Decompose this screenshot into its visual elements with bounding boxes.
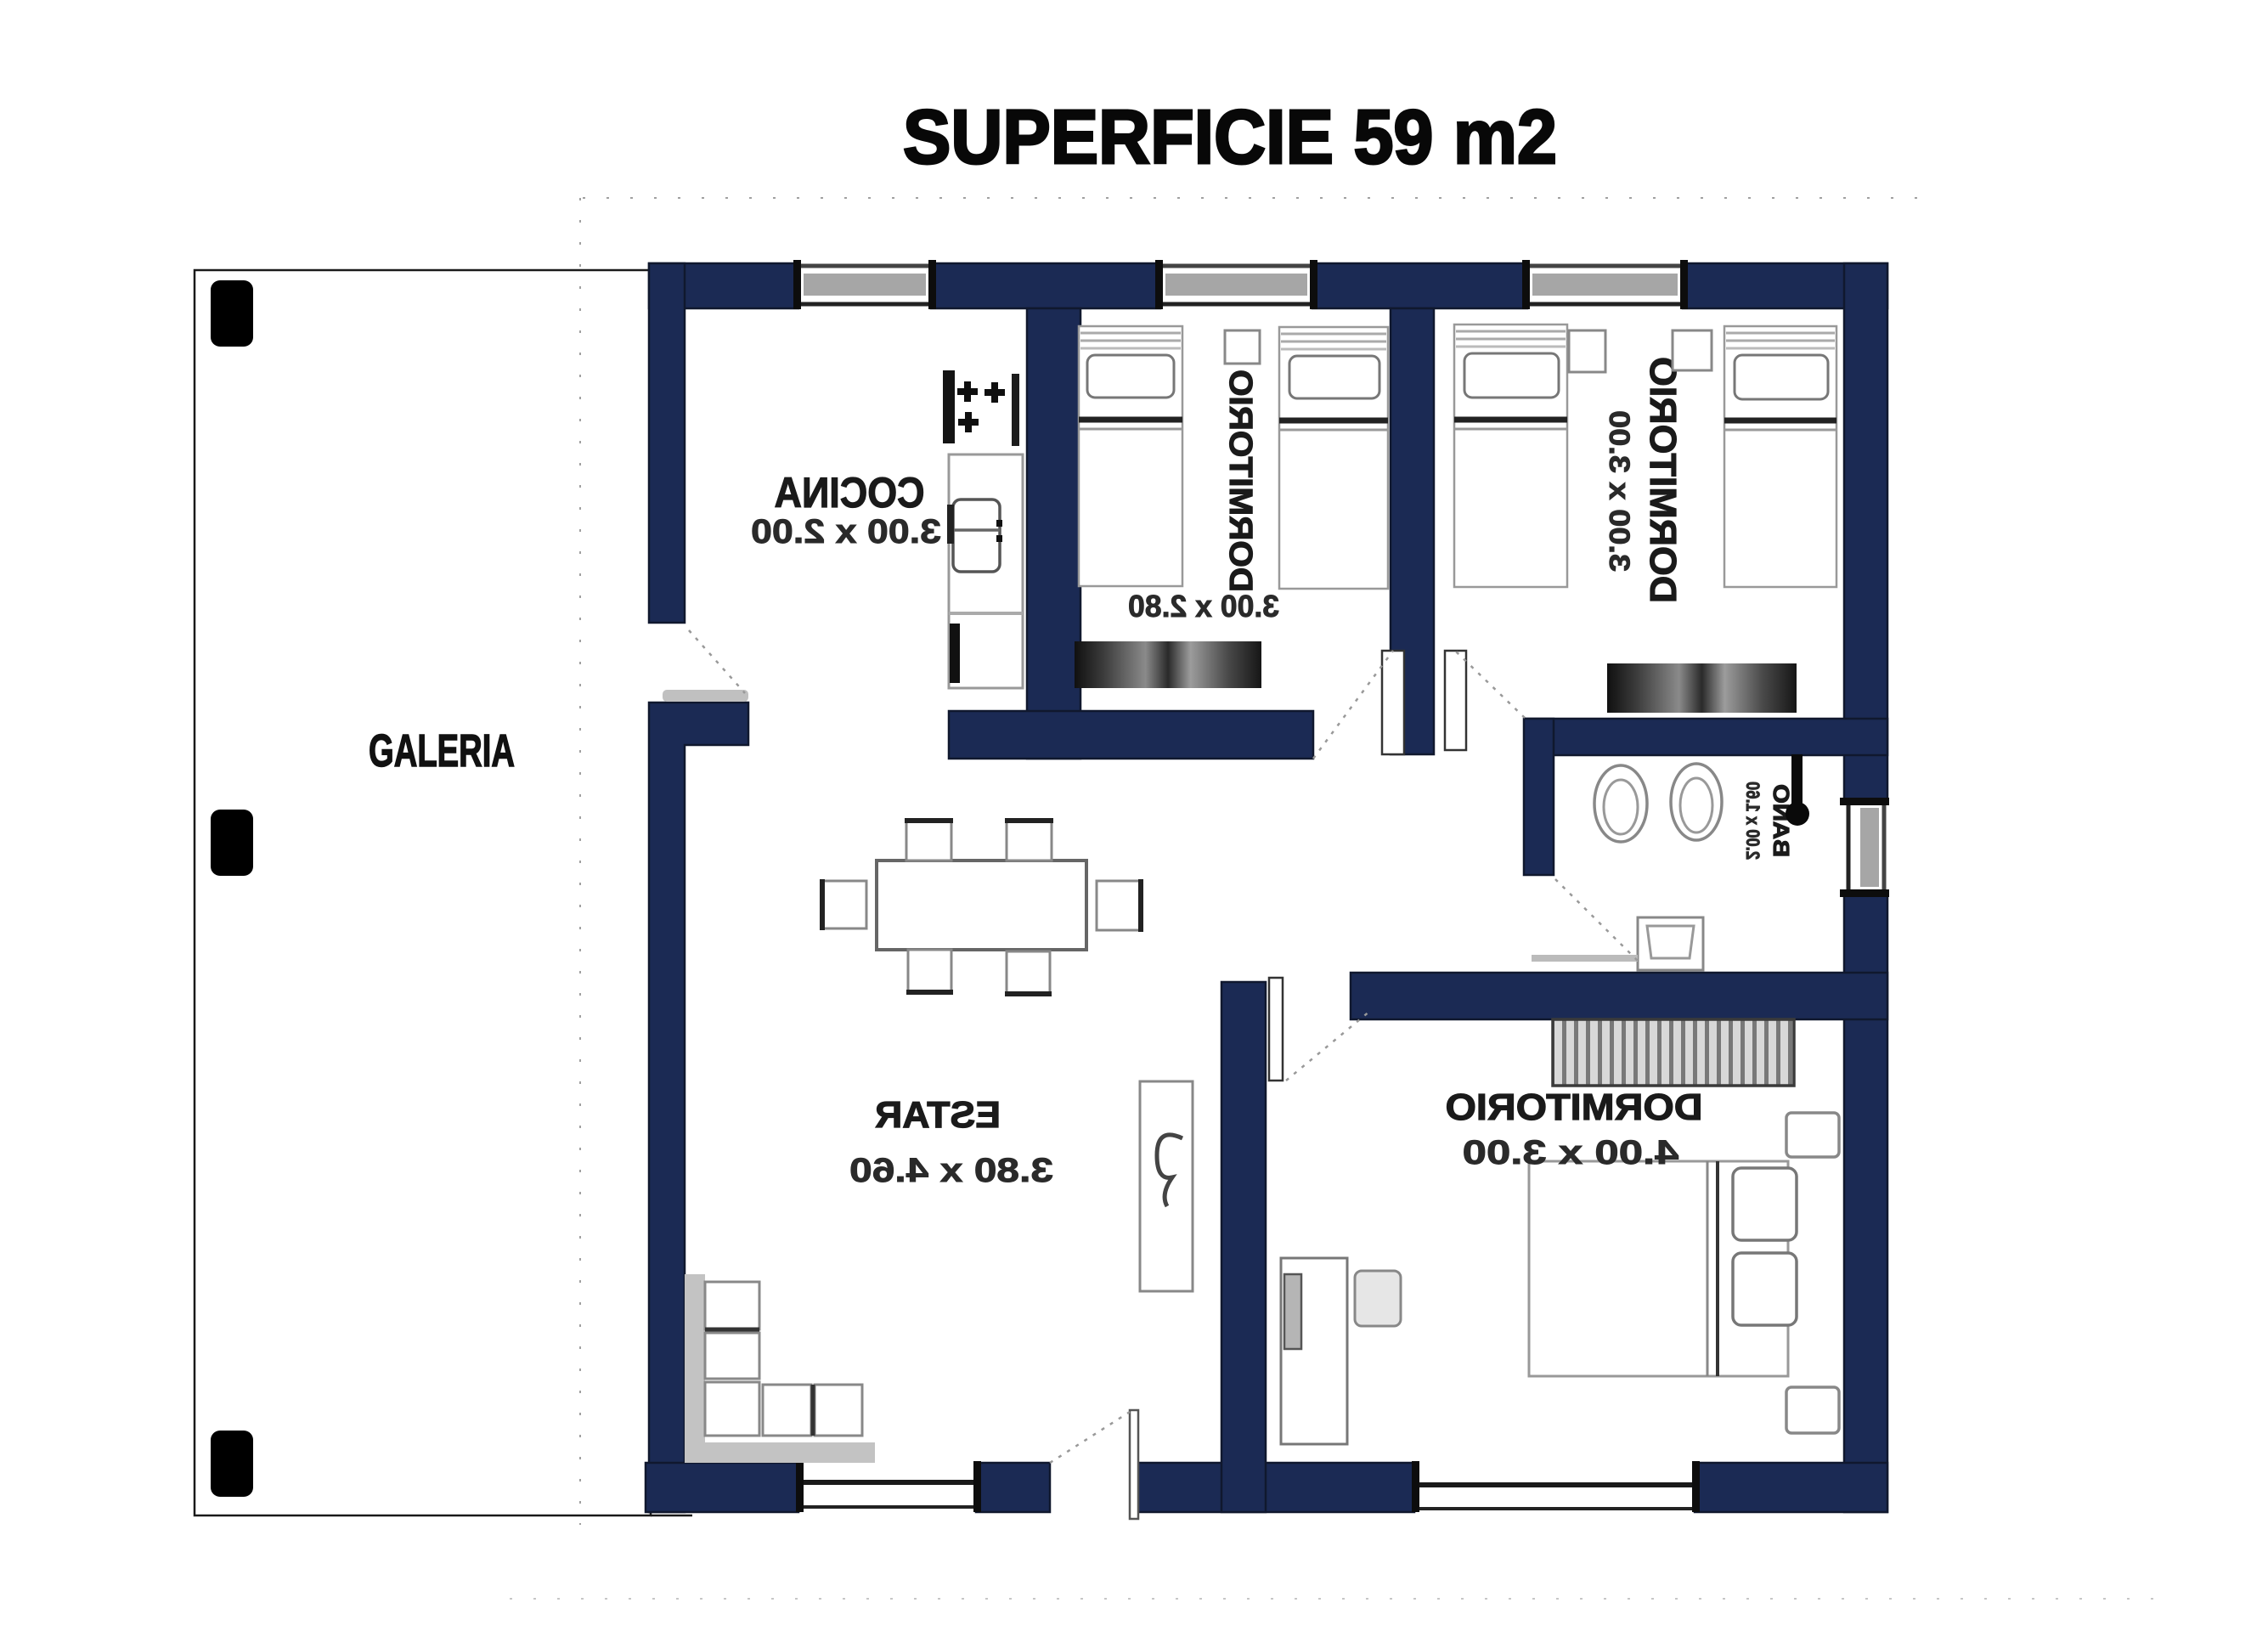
svg-text:COCINA: COCINA [775,469,925,516]
svg-text:ESTAR: ESTAR [875,1094,1001,1136]
svg-text:3.00 x 2.80: 3.00 x 2.80 [1128,589,1279,624]
svg-text:GALERIA: GALERIA [369,725,515,776]
svg-text:4.00 x 3.00: 4.00 x 3.00 [1463,1134,1679,1171]
svg-text:3.80 x 4.60: 3.80 x 4.60 [849,1152,1053,1189]
svg-text:3.00 x 2.00: 3.00 x 2.00 [751,513,941,550]
svg-text:2.00 x 1.60: 2.00 x 1.60 [1742,782,1763,860]
svg-text:SUPERFICIE 59 m2: SUPERFICIE 59 m2 [903,95,1557,180]
svg-text:DORMITORIO: DORMITORIO [1446,1086,1703,1128]
svg-text:DORMITORIO: DORMITORIO [1222,370,1258,592]
svg-text:DORMITORIO: DORMITORIO [1642,357,1684,603]
svg-text:3.00 x 3.00: 3.00 x 3.00 [1603,410,1635,572]
